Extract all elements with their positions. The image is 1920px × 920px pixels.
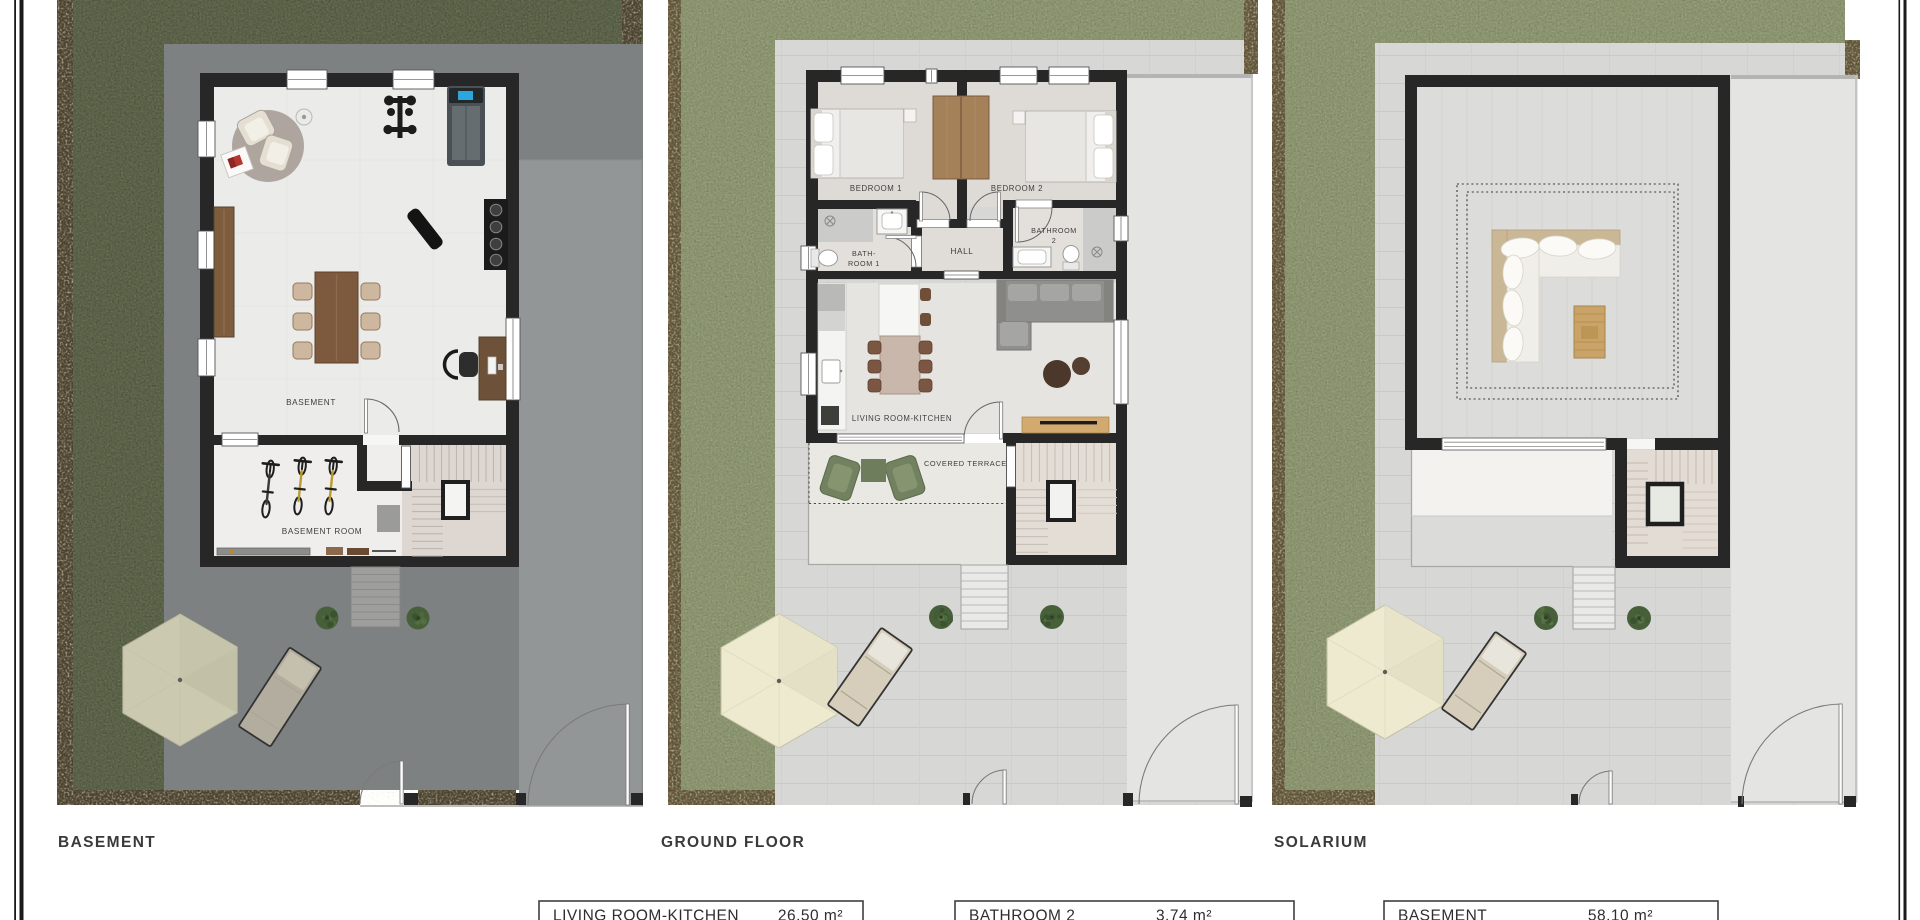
svg-text:BASEMENT: BASEMENT bbox=[58, 834, 156, 851]
svg-text:BATHROOM: BATHROOM bbox=[1031, 226, 1077, 235]
svg-text:LIVING ROOM-KITCHEN: LIVING ROOM-KITCHEN bbox=[852, 414, 952, 423]
svg-text:BATHROOM 2: BATHROOM 2 bbox=[969, 908, 1075, 920]
svg-text:3.74 m²: 3.74 m² bbox=[1156, 908, 1212, 920]
svg-text:BEDROOM 1: BEDROOM 1 bbox=[850, 184, 902, 193]
svg-text:COVERED TERRACE: COVERED TERRACE bbox=[924, 459, 1007, 468]
svg-text:BASEMENT: BASEMENT bbox=[1398, 908, 1487, 920]
svg-text:BASEMENT ROOM: BASEMENT ROOM bbox=[282, 527, 362, 536]
svg-text:26.50 m²: 26.50 m² bbox=[778, 908, 843, 920]
svg-text:HALL: HALL bbox=[951, 247, 974, 256]
svg-text:BATH-: BATH- bbox=[852, 249, 876, 258]
svg-text:BASEMENT: BASEMENT bbox=[286, 398, 336, 407]
svg-text:ROOM 1: ROOM 1 bbox=[848, 259, 880, 268]
svg-text:SOLARIUM: SOLARIUM bbox=[1274, 834, 1368, 851]
svg-text:58.10 m²: 58.10 m² bbox=[1588, 908, 1653, 920]
svg-text:GROUND FLOOR: GROUND FLOOR bbox=[661, 834, 805, 851]
svg-text:LIVING ROOM-KITCHEN: LIVING ROOM-KITCHEN bbox=[553, 908, 739, 920]
svg-text:2: 2 bbox=[1052, 236, 1057, 245]
svg-text:BEDROOM 2: BEDROOM 2 bbox=[991, 184, 1043, 193]
